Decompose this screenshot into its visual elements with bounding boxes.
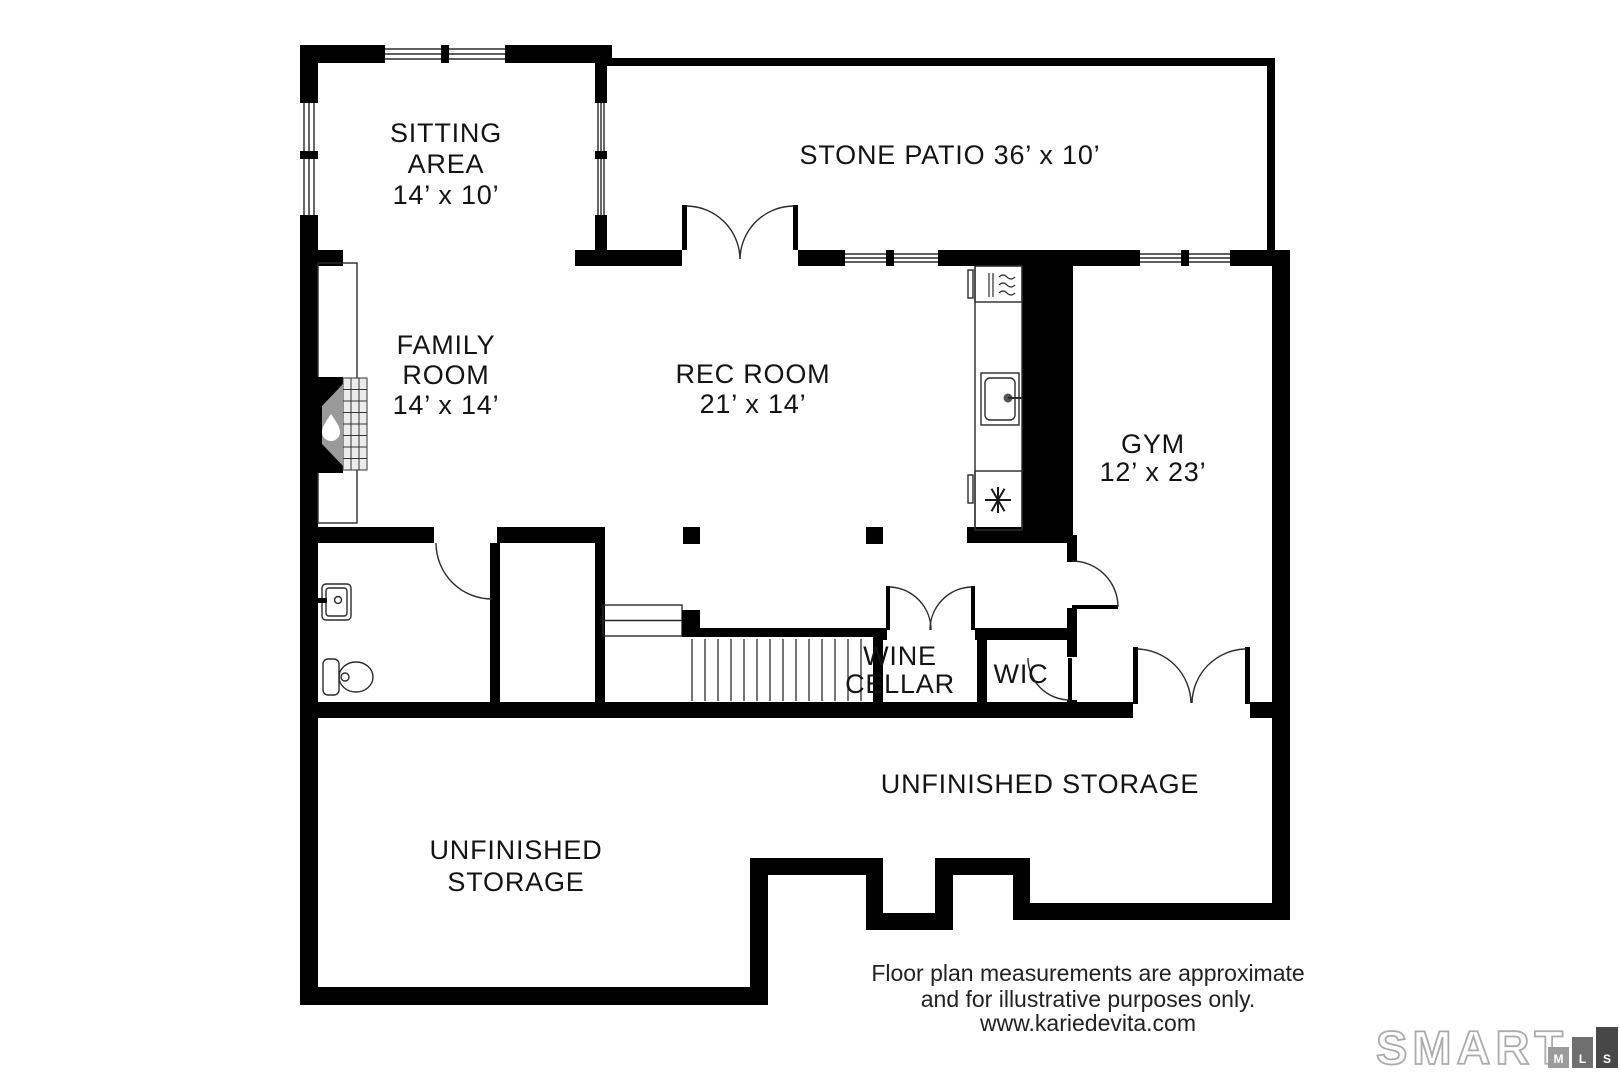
room-label-unfinished-storage-left: UNFINISHED [429, 835, 602, 865]
disclaimer-line-1: Floor plan measurements are approximate [871, 960, 1304, 986]
disclaimer: Floor plan measurements are approximate … [871, 960, 1304, 1036]
room-label-unfinished-storage-left: STORAGE [447, 867, 584, 897]
toilet-icon [323, 659, 373, 695]
window [385, 45, 505, 63]
room-label-rec-room-dim: 21’ x 14’ [700, 389, 807, 419]
stair-landing-shelf [603, 605, 700, 637]
room-label-family-room: FAMILY [397, 330, 496, 360]
floor-plan: SITTING AREA 14’ x 10’ STONE PATIO 36’ x… [0, 0, 1620, 1080]
room-label-sitting-area: AREA [408, 149, 485, 179]
door-gym [1072, 561, 1118, 609]
disclaimer-website-link: www.kariedevita.com [979, 1010, 1196, 1036]
stair-treads [692, 639, 861, 701]
room-label-family-room: ROOM [402, 360, 489, 390]
bathroom-sink-icon [318, 584, 351, 620]
freezer-icon [968, 471, 1022, 530]
window [300, 103, 318, 215]
logo-tile-letter-s: S [1603, 1052, 1611, 1066]
kitchen-sink-icon [981, 373, 1022, 425]
french-doors-storage [1133, 647, 1250, 704]
room-label-family-room-dim: 14’ x 14’ [393, 390, 500, 420]
snowflake-icon [985, 487, 1011, 513]
room-label-gym: GYM [1121, 429, 1185, 459]
logo-tile-letter-m: M [1554, 1052, 1564, 1066]
bathroom-fixtures [318, 584, 373, 695]
room-label-stone-patio: STONE PATIO 36’ x 10’ [800, 140, 1101, 170]
room-label-unfinished-storage-right: UNFINISHED STORAGE [881, 769, 1199, 799]
room-label-wine-cellar: CELLAR [845, 669, 955, 699]
french-doors-patio [682, 205, 798, 259]
kitchenette [968, 266, 1022, 530]
window [845, 250, 938, 266]
stairs [603, 605, 861, 701]
room-label-sitting-area-dim: 14’ x 10’ [393, 180, 500, 210]
smartmls-logo: SMART M L S [1376, 1021, 1618, 1074]
room-label-wine-cellar: WINE [863, 641, 937, 671]
room-label-rec-room: REC ROOM [676, 359, 831, 389]
window [1140, 250, 1230, 266]
room-label-wic: WIC [994, 659, 1049, 689]
room-label-gym-dim: 12’ x 23’ [1100, 457, 1207, 487]
disclaimer-line-2: and for illustrative purposes only. [921, 986, 1256, 1012]
window [595, 103, 607, 215]
smart-logo-word: SMART [1376, 1021, 1568, 1074]
room-label-sitting-area: SITTING [390, 118, 502, 148]
french-doors-wine-cellar [886, 586, 975, 630]
room-labels: SITTING AREA 14’ x 10’ STONE PATIO 36’ x… [390, 118, 1206, 897]
floor-plan-page: SITTING AREA 14’ x 10’ STONE PATIO 36’ x… [0, 0, 1620, 1080]
logo-tile-letter-l: L [1579, 1052, 1586, 1066]
door-bathroom [436, 543, 492, 599]
range-icon [968, 266, 1022, 302]
